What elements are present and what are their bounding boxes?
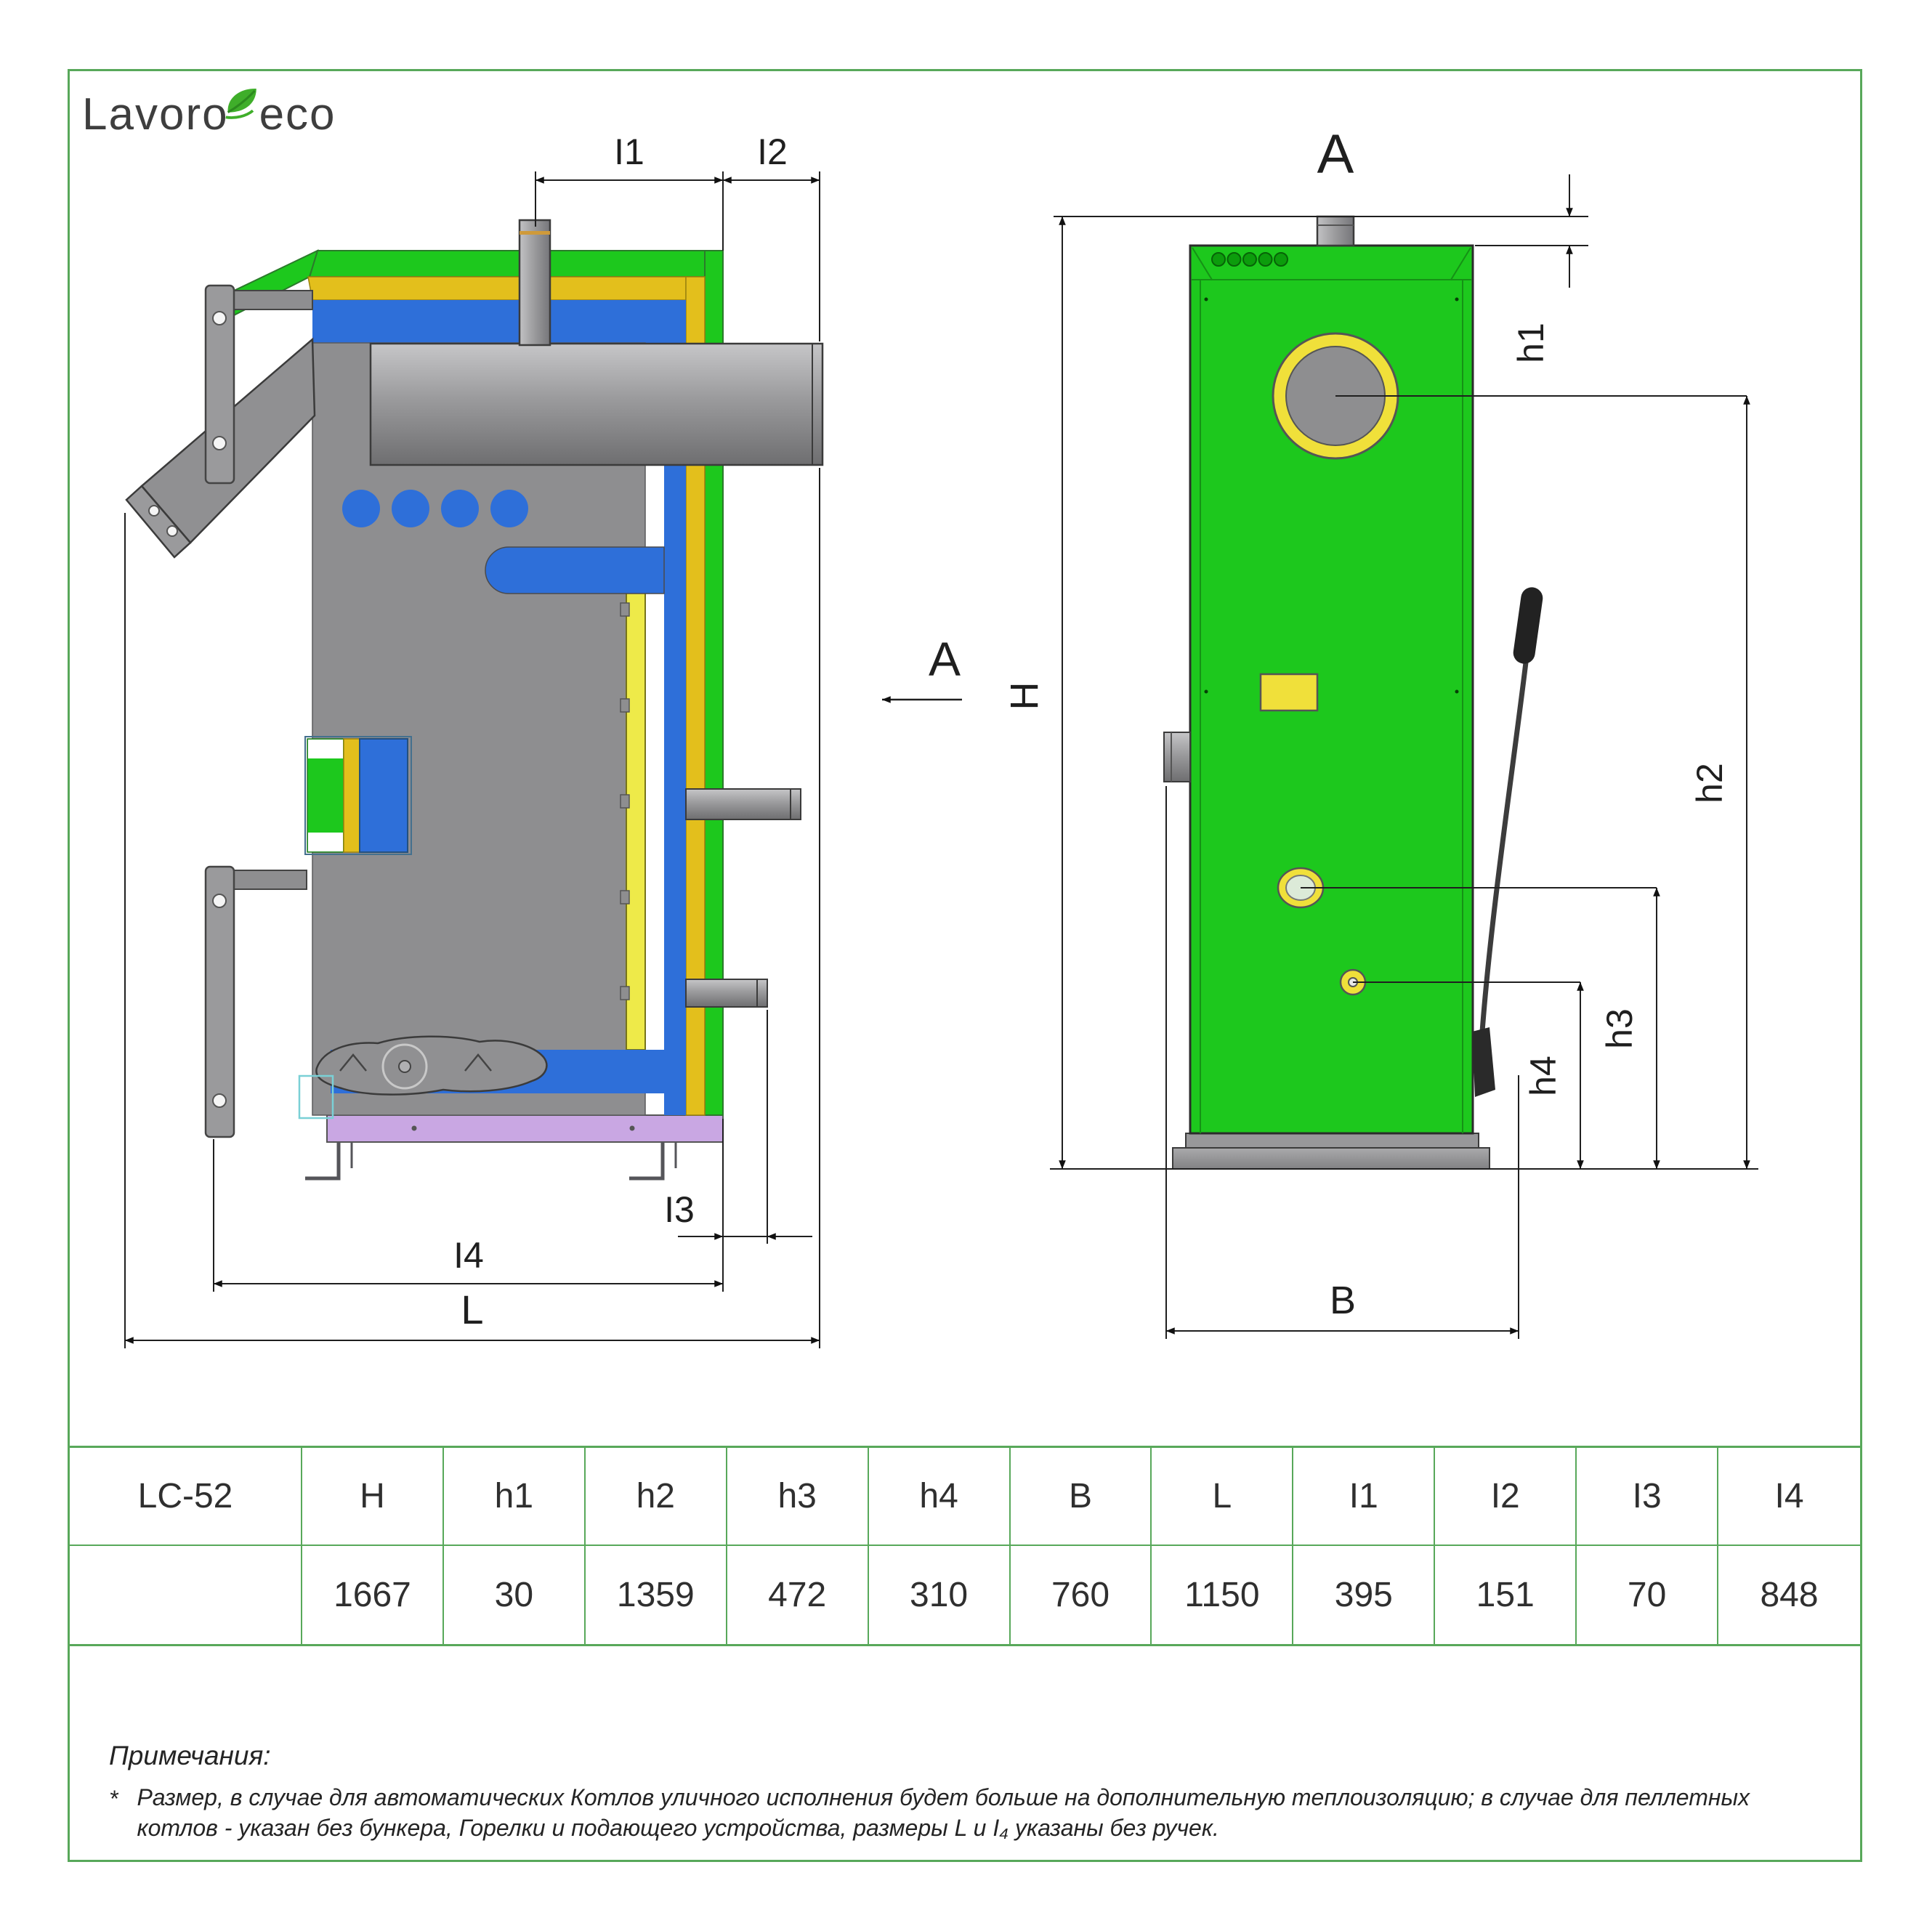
table-value-I2: 151 [1435,1546,1577,1644]
table-header-h2: h2 [586,1448,727,1546]
dim-label-H: H [1003,682,1046,711]
table-value-I4: 848 [1718,1546,1860,1644]
dim-label-I4: I4 [453,1235,484,1276]
dim-label-h3: h3 [1599,1008,1640,1049]
lower-door-frame [206,867,307,1137]
table-header-model: LC-52 [70,1448,302,1546]
table-header-h3: h3 [727,1448,869,1546]
notes-title: Примечания: [109,1741,1809,1771]
side-section-view: I1 I2 I3 I4 L [125,131,822,1348]
table-value-model [70,1546,302,1644]
table-value-H: 1667 [302,1546,444,1644]
label-plate [1261,674,1317,711]
view-direction-arrow: A [882,632,962,700]
technical-drawing: I1 I2 I3 I4 L A A [0,0,1932,1380]
support-legs [305,1142,676,1178]
top-fitting-pipe [520,220,550,345]
dim-label-h2: h2 [1689,763,1730,803]
notes-block: Примечания: * Размер, в случае для автом… [109,1741,1809,1843]
note-marker: * [109,1783,118,1843]
front-base [1173,1133,1490,1169]
table-header-I2: I2 [1435,1448,1577,1546]
front-view-title: A [1317,124,1354,185]
dim-label-h1: h1 [1511,323,1551,363]
grate-lever [316,1037,546,1095]
table-header-H: H [302,1448,444,1546]
side-stub-pipe [1164,732,1190,782]
table-header-L: L [1152,1448,1293,1546]
table-value-B: 760 [1011,1546,1152,1644]
boiler-base-strip [327,1115,723,1142]
table-value-I1: 395 [1293,1546,1435,1644]
dim-label-B: B [1330,1279,1356,1322]
table-header-I1: I1 [1293,1448,1435,1546]
regulator-handle [1472,586,1544,1097]
middle-door-section [305,737,411,854]
table-value-I3: 70 [1577,1546,1718,1644]
table-value-L: 1150 [1152,1546,1293,1644]
flue-pipe [371,344,822,465]
view-arrow-label: A [929,632,961,686]
note-item: * Размер, в случае для автоматических Ко… [109,1783,1809,1843]
dim-label-I3: I3 [664,1189,695,1230]
dim-label-L: L [461,1287,483,1332]
table-value-h3: 472 [727,1546,869,1644]
table-header-h4: h4 [869,1448,1011,1546]
front-view: A [1003,124,1758,1339]
dim-label-I2: I2 [757,131,788,172]
drawing-sheet: Lavoro eco [0,0,1932,1931]
table-header-B: B [1011,1448,1152,1546]
table-value-h2: 1359 [586,1546,727,1644]
table-value-h4: 310 [869,1546,1011,1644]
table-header-I4: I4 [1718,1448,1860,1546]
table-value-h1: 30 [444,1546,586,1644]
table-header-I3: I3 [1577,1448,1718,1546]
table-header-h1: h1 [444,1448,586,1546]
dimensions-table: LC-52 H h1 h2 h3 h4 B L I1 I2 I3 I4 1667… [68,1446,1862,1646]
note-text: Размер, в случае для автоматических Котл… [137,1783,1809,1843]
dim-label-I1: I1 [614,131,644,172]
dim-label-h4: h4 [1523,1056,1564,1096]
chimney-stub [1317,216,1354,246]
